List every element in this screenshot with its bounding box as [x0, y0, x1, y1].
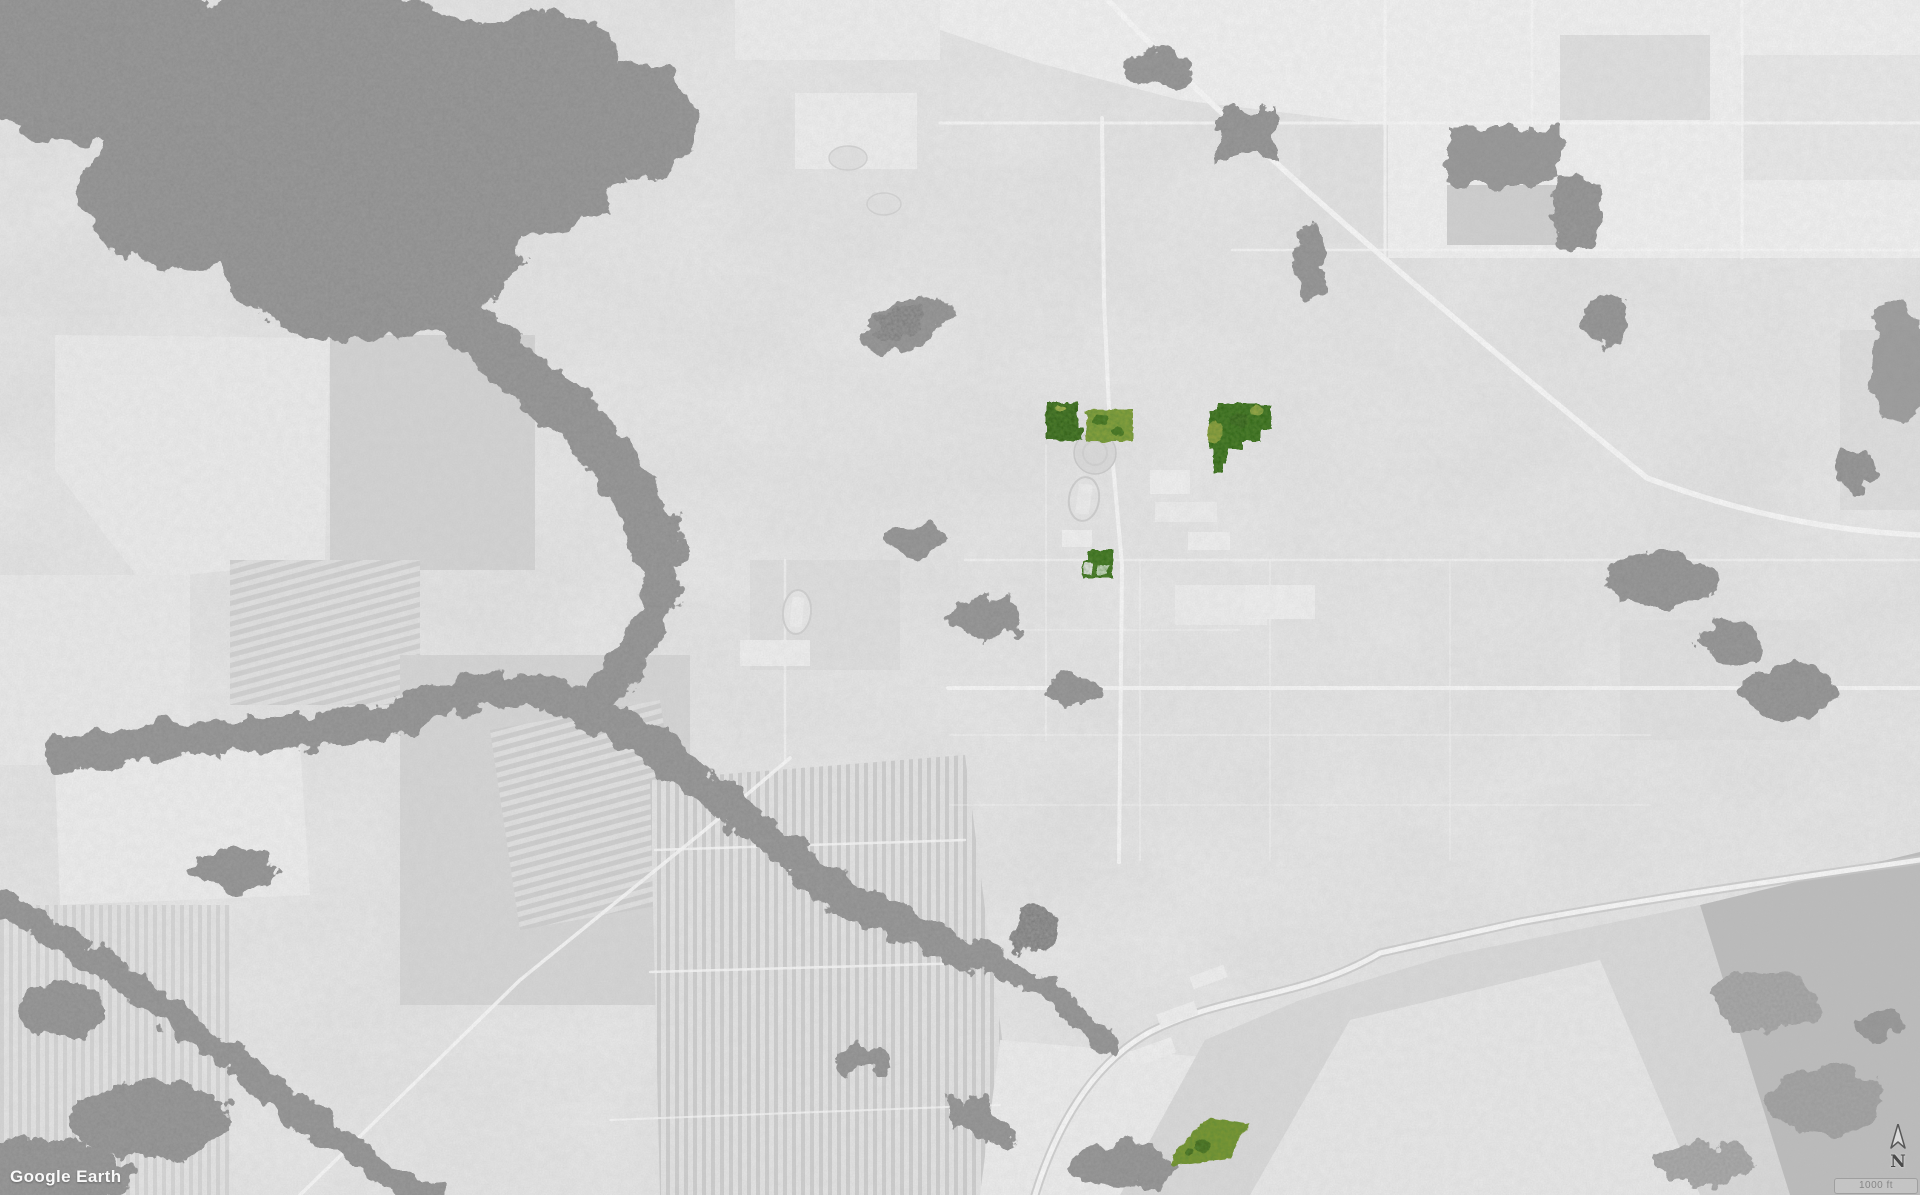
north-indicator: N: [1878, 1124, 1918, 1172]
scale-label: 1000 ft: [1859, 1180, 1893, 1191]
north-label: N: [1878, 1152, 1918, 1172]
satellite-map-canvas[interactable]: [0, 0, 1920, 1195]
parcel-central-court: [1097, 565, 1109, 575]
parcel-central-building: [1084, 563, 1092, 575]
parcel-west-b: [1086, 409, 1133, 441]
fine-grain: [0, 0, 1920, 1195]
north-arrow-icon: [1888, 1124, 1908, 1150]
google-earth-watermark: Google Earth: [10, 1167, 122, 1187]
scale-bar: 1000 ft: [1834, 1178, 1918, 1194]
map-viewport: Google Earth N 1000 ft: [0, 0, 1920, 1195]
